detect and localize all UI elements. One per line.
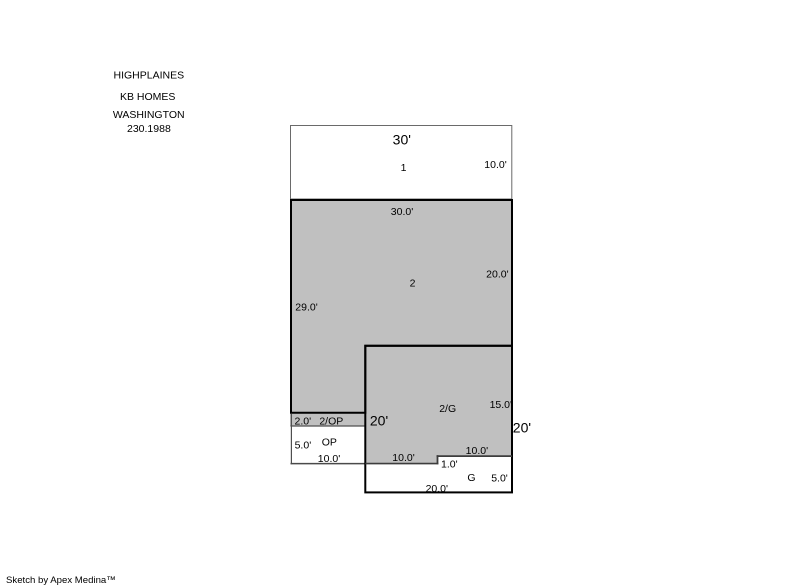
svg-text:20': 20' bbox=[513, 420, 531, 436]
svg-text:OP: OP bbox=[322, 437, 337, 449]
svg-text:10.0': 10.0' bbox=[466, 445, 488, 457]
svg-text:5.0': 5.0' bbox=[295, 440, 312, 452]
svg-text:30.0': 30.0' bbox=[391, 206, 413, 218]
svg-text:G: G bbox=[467, 472, 475, 484]
svg-text:10.0': 10.0' bbox=[484, 159, 506, 171]
svg-text:2: 2 bbox=[410, 278, 416, 290]
svg-text:230.1988: 230.1988 bbox=[127, 123, 171, 135]
svg-text:20': 20' bbox=[370, 413, 388, 429]
svg-text:Sketch by Apex Medina™: Sketch by Apex Medina™ bbox=[6, 575, 116, 586]
svg-text:15.0': 15.0' bbox=[490, 399, 512, 411]
svg-text:WASHINGTON: WASHINGTON bbox=[113, 109, 185, 121]
svg-text:10.0': 10.0' bbox=[318, 453, 340, 465]
svg-text:30': 30' bbox=[393, 132, 411, 148]
svg-text:2/OP: 2/OP bbox=[319, 415, 343, 427]
svg-text:2/G: 2/G bbox=[439, 403, 456, 415]
svg-text:1.0': 1.0' bbox=[441, 459, 458, 471]
svg-text:29.0': 29.0' bbox=[295, 302, 317, 314]
svg-text:2.0': 2.0' bbox=[294, 415, 311, 427]
svg-text:20.0': 20.0' bbox=[426, 483, 448, 495]
svg-text:20.0': 20.0' bbox=[486, 268, 508, 280]
svg-text:5.0': 5.0' bbox=[491, 472, 508, 484]
svg-text:1: 1 bbox=[401, 162, 407, 174]
svg-text:KB HOMES: KB HOMES bbox=[120, 91, 175, 103]
svg-text:HIGHPLAINES: HIGHPLAINES bbox=[113, 70, 184, 82]
svg-text:10.0': 10.0' bbox=[392, 452, 414, 464]
